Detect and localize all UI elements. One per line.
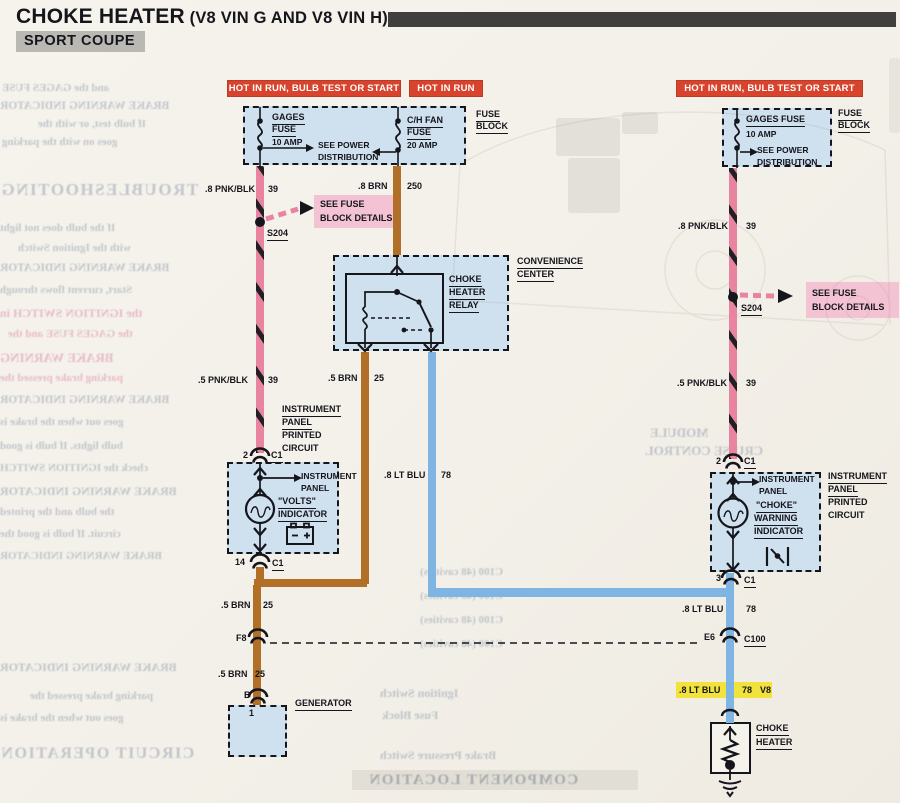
ip-left-outside-label4: CIRCUIT	[282, 443, 319, 454]
relay-label2: HEATER	[449, 287, 485, 300]
connector-c1-left-bottom-icon	[251, 555, 269, 569]
ip-right-inside-label: INSTRUMENT	[759, 474, 815, 485]
fuse-block-label2-right: BLOCK	[838, 120, 870, 133]
bulb-filament-icon	[724, 511, 743, 521]
wire-label-gauge-highlighted: .8 LT BLU	[679, 685, 720, 696]
splice-dot-left	[255, 217, 265, 227]
wire-pnk-right	[729, 168, 737, 459]
ip-right-outside-label: INSTRUMENT	[828, 471, 887, 484]
convenience-center-label2: CENTER	[517, 269, 554, 282]
wire-blu-relay-down	[428, 352, 436, 597]
bulb-filament-icon	[251, 507, 270, 517]
gages-fuse-rating: 10 AMP	[272, 137, 302, 148]
ip-right-inside-label2: PANEL	[759, 486, 787, 497]
wire-label-gauge: .8 LT BLU	[384, 470, 425, 481]
battery-icon	[287, 524, 313, 545]
see-power-label2-right: DISTRIBUTION	[757, 157, 817, 168]
wire-label-gauge: .8 BRN	[358, 181, 388, 192]
wire-label-circuit: 25	[374, 373, 384, 384]
see-fuse-details-right2: BLOCK DETAILS	[812, 302, 884, 313]
wire-label-gauge: .8 PNK/BLK	[678, 221, 728, 232]
fuse-block-label: FUSE	[476, 109, 500, 122]
volts-indicator-label2: INDICATOR	[278, 509, 327, 522]
arrow-right-icon	[300, 201, 314, 215]
convenience-center-label: CONVENIENCE	[517, 256, 583, 269]
arrow-right-icon	[306, 144, 314, 152]
resistor-icon	[723, 740, 737, 762]
ip-left-outside-label2: PANEL	[282, 417, 312, 430]
wire-label-circuit: 39	[746, 378, 756, 389]
wire-label-circuit: 39	[268, 184, 278, 195]
ip-left-outside-label: INSTRUMENT	[282, 404, 341, 417]
choke-indicator-label2: WARNING	[754, 513, 798, 526]
gages-fuse-name2: FUSE	[272, 124, 296, 137]
connector-name: C1	[272, 558, 284, 571]
connector-pin: 2	[716, 456, 721, 467]
connector-name: C1	[271, 450, 283, 463]
wire-brn-relay-down	[361, 352, 369, 584]
wire-blu-horizontal	[428, 588, 734, 597]
connector-name-c100: C100	[744, 634, 766, 647]
wire-label-circuit: 78	[746, 604, 756, 615]
chfan-fuse-icon	[396, 121, 400, 150]
ip-left-inside-label2: PANEL	[301, 483, 329, 494]
see-power-label: SEE POWER	[318, 140, 369, 151]
choke-indicator-label: "CHOKE"	[756, 500, 797, 513]
wire-label-gauge: .5 PNK/BLK	[677, 378, 727, 389]
connector-name: C1	[744, 456, 756, 469]
gages-fuse-name-right: GAGES FUSE	[746, 114, 805, 127]
see-power-label-right: SEE POWER	[757, 145, 808, 156]
chfan-fuse-rating: 20 AMP	[407, 140, 437, 151]
gages-fuse-icon	[735, 121, 739, 148]
wire-label-circuit: 25	[263, 600, 273, 611]
splice-label-right: S204	[741, 303, 762, 316]
relay-coil-icon	[363, 307, 367, 329]
splice-dot-right	[728, 292, 738, 302]
bulkhead-pin-e6: E6	[704, 632, 715, 643]
wire-brn-ip-stub	[256, 567, 264, 583]
wire-label-gauge: .5 BRN	[328, 373, 358, 384]
see-fuse-details-left2: BLOCK DETAILS	[320, 213, 392, 224]
volts-indicator-label: "VOLTS"	[278, 496, 316, 509]
wire-pnk-left	[256, 166, 264, 453]
connector-name: C1	[744, 575, 756, 588]
bulkhead-pin-f8: F8	[236, 633, 247, 644]
chfan-fuse-name: C/H FAN	[407, 115, 443, 128]
wire-label-circuit: 39	[268, 375, 278, 386]
scanned-wiring-diagram-page: and the GAGES FUSE BRAKE WARNING INDICAT…	[0, 0, 900, 803]
brn-wires	[253, 166, 401, 705]
switch-icon	[767, 547, 788, 566]
wire-label-gauge: .8 PNK/BLK	[205, 184, 255, 195]
wire-label-gauge: .5 BRN	[218, 669, 248, 680]
ip-left-inside-label: INSTRUMENT	[301, 471, 357, 482]
wire-label-gauge: .8 LT BLU	[682, 604, 723, 615]
ip-left-outside-label3: PRINTED	[282, 430, 322, 441]
ground-icon	[719, 781, 741, 796]
generator-terminal: 1	[249, 708, 254, 719]
ip-right-outside-label3: PRINTED	[828, 497, 868, 508]
wire-brn-to-generator	[253, 585, 261, 705]
wire-brn-horizontal	[254, 579, 367, 587]
gages-fuse-icon	[258, 121, 262, 148]
choke-heater-label2: HEATER	[756, 737, 792, 750]
wire-label-circuit: 39	[746, 221, 756, 232]
fuse-block-label2: BLOCK	[476, 121, 508, 134]
wire-label-circuit: 250	[407, 181, 422, 192]
lt-blu-wires	[428, 352, 734, 723]
connector-pin: 2	[243, 450, 248, 461]
see-fuse-details-left: SEE FUSE	[320, 199, 365, 210]
gages-fuse-rating-right: 10 AMP	[746, 129, 776, 140]
relay-switch-blade-icon	[419, 302, 431, 327]
wire-label-engine-highlighted: V8	[760, 685, 771, 696]
wire-label-gauge: .5 BRN	[221, 600, 251, 611]
wire-label-circuit: 25	[255, 669, 265, 680]
arrow-right-icon	[778, 289, 793, 303]
see-fuse-details-right: SEE FUSE	[812, 288, 857, 299]
connector-pin: 3	[716, 573, 721, 584]
ip-right-outside-label4: CIRCUIT	[828, 510, 865, 521]
ip-right-outside-label2: PANEL	[828, 484, 858, 497]
gages-fuse-name: GAGES	[272, 112, 305, 125]
wire-label-circuit: 78	[441, 470, 451, 481]
fuse-block-label-right: FUSE	[838, 108, 862, 121]
chfan-fuse-name2: FUSE	[407, 127, 431, 140]
generator-pin: B	[244, 690, 251, 701]
choke-indicator-label3: INDICATOR	[754, 526, 803, 539]
relay-internals	[358, 255, 438, 351]
generator-label: GENERATOR	[295, 698, 352, 711]
splice-label-left: S204	[267, 228, 288, 241]
wire-label-gauge: .5 PNK/BLK	[198, 375, 248, 386]
wire-blu-to-choke	[726, 573, 734, 723]
wire-brn-chfan	[393, 166, 401, 255]
choke-heater-label: CHOKE	[756, 723, 789, 736]
wire-label-circuit-highlighted: 78	[742, 685, 752, 696]
relay-label3: RELAY	[449, 300, 479, 313]
relay-label: CHOKE	[449, 274, 482, 287]
connector-pin: 14	[235, 557, 245, 568]
see-power-label2: DISTRIBUTION	[318, 152, 378, 163]
